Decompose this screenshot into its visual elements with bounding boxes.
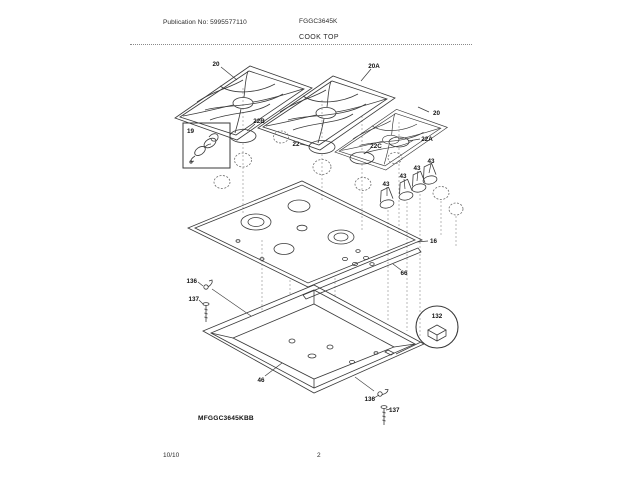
callout-46: 46	[257, 377, 265, 384]
callout-20a: 20A	[368, 63, 380, 70]
callout-43-4: 43	[427, 158, 435, 165]
exploded-diagram: 20 20A 20 22B 19 22 22C 22A 43 43 43 43 …	[0, 0, 640, 480]
burner-grates	[175, 66, 447, 170]
callout-43-1: 43	[382, 181, 390, 188]
detail-circle-132	[396, 306, 458, 354]
burner-caps	[230, 130, 409, 165]
callout-22b: 22B	[253, 118, 265, 125]
callout-16: 16	[430, 238, 438, 245]
diagram-model-label: MFGGC3645KBB	[198, 415, 254, 422]
maintop-panel	[188, 181, 422, 287]
parts-catalog-page: Publication No: 5995577110 FGGC3645K COO…	[0, 0, 640, 480]
burner-box-pan	[203, 285, 424, 393]
callout-labels: 20 20A 20 22B 19 22 22C 22A 43 43 43 43 …	[186, 61, 442, 414]
callout-137-bottom: 137	[389, 407, 400, 414]
callout-66: 66	[400, 270, 408, 277]
mounting-clips-screws	[203, 280, 388, 425]
footer-page-number: 2	[317, 452, 321, 459]
callout-137-left: 137	[188, 296, 199, 303]
footer-revision-date: 10/10	[163, 452, 179, 459]
callout-43-2: 43	[399, 173, 407, 180]
callout-22: 22	[292, 141, 300, 148]
callout-20-left: 20	[212, 61, 220, 68]
callout-136-bottom: 136	[364, 396, 375, 403]
callout-20-right: 20	[433, 110, 441, 117]
callout-leader-lines	[198, 67, 431, 410]
callout-136-left: 136	[186, 278, 197, 285]
callout-132: 132	[432, 313, 443, 320]
callout-22a: 22A	[421, 136, 433, 143]
callout-22c: 22C	[370, 143, 382, 150]
projection-lines	[243, 88, 456, 338]
callout-19: 19	[187, 128, 195, 135]
callout-43-3: 43	[413, 165, 421, 172]
